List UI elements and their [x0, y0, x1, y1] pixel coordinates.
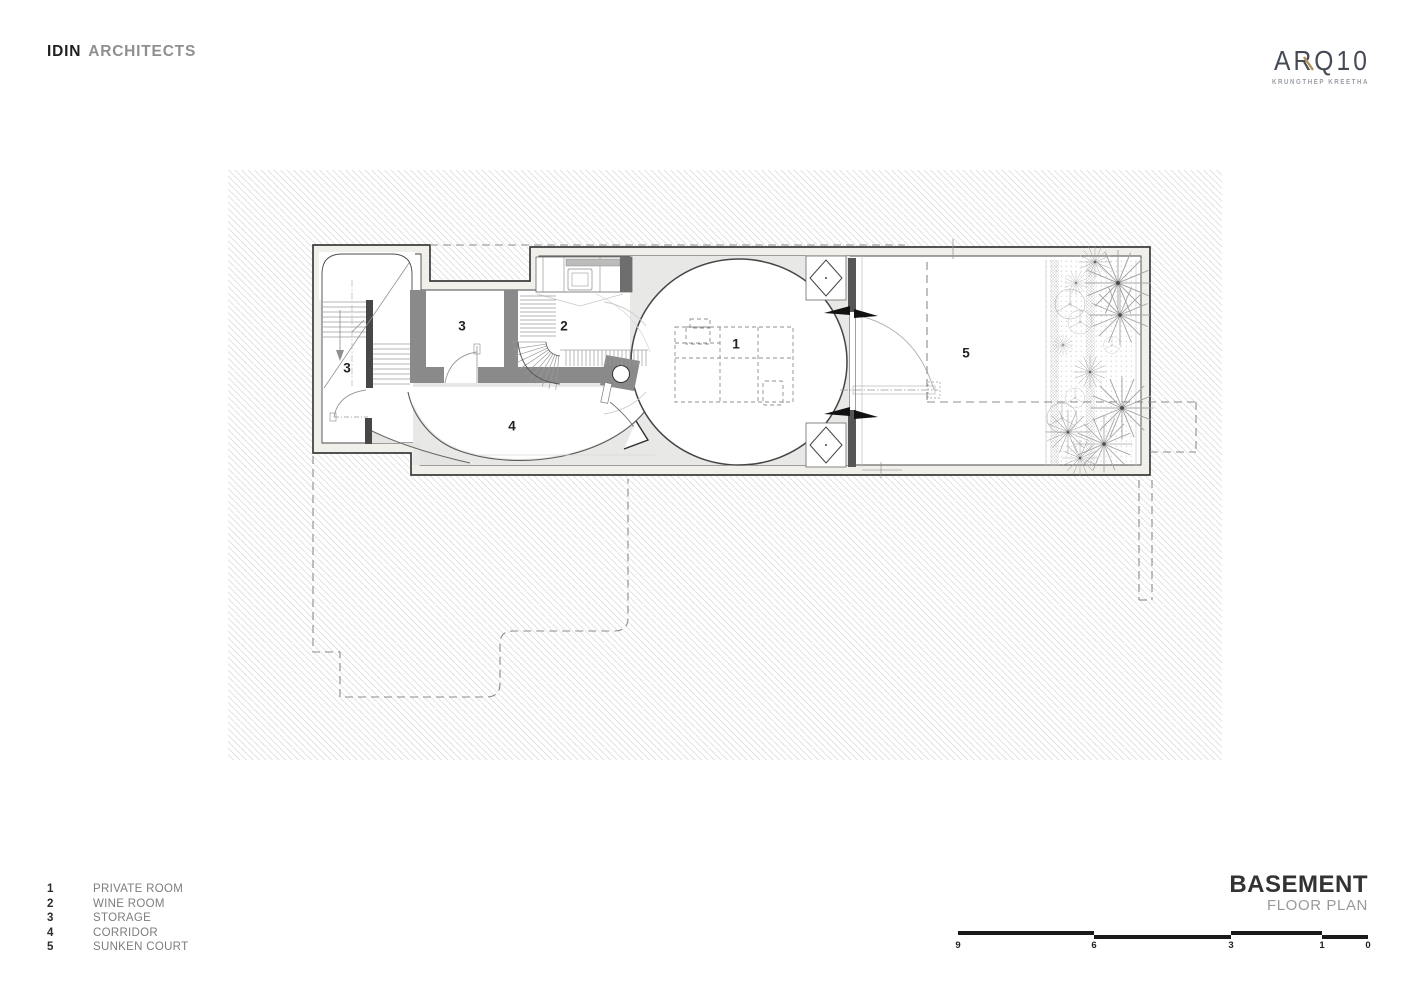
scale-bar-segment: [958, 931, 1094, 935]
scale-bar: 9 6 3 1 0: [950, 925, 1375, 957]
legend-label: STORAGE: [93, 911, 151, 926]
brand-primary: IDIN: [47, 43, 81, 60]
project-logo: ARQ10 KRUNGTHEP KREETHA: [1262, 40, 1380, 92]
hedge-band: [1050, 260, 1059, 466]
scale-bar-segment: [1322, 935, 1368, 939]
stair-wall: [366, 300, 373, 388]
partition-wall: [410, 367, 444, 383]
title-block: BASEMENT FLOOR PLAN: [1229, 872, 1368, 914]
legend-label: CORRIDOR: [93, 926, 158, 941]
legend-row: 4 CORRIDOR: [47, 926, 188, 941]
scale-bar-segment: [1094, 935, 1231, 939]
scale-number: 1: [1319, 940, 1324, 951]
legend-number: 5: [47, 940, 93, 955]
room-number-label: 3: [343, 361, 351, 376]
room-number-label: 3: [458, 319, 466, 334]
legend-number: 1: [47, 882, 93, 897]
room-number-label: 4: [508, 419, 516, 434]
legend-row: 5 SUNKEN COURT: [47, 940, 188, 955]
storage-room-rounded-walls: [322, 254, 412, 300]
room-number-label: 5: [962, 346, 970, 361]
scale-number: 0: [1365, 940, 1370, 951]
legend-label: SUNKEN COURT: [93, 940, 188, 955]
scale-number: 9: [955, 940, 960, 951]
closet-shelf: [566, 259, 620, 266]
brand-logo: IDINARCHITECTS: [47, 43, 196, 61]
legend-row: 3 STORAGE: [47, 911, 188, 926]
scale-number: 6: [1091, 940, 1096, 951]
legend-number: 4: [47, 926, 93, 941]
scale-bar-segment: [1231, 931, 1322, 935]
closet-appliance: [568, 269, 592, 290]
court-wall-upper: [848, 258, 856, 312]
basement-floor-plan-drawing: [228, 170, 1222, 760]
room-legend: 1 PRIVATE ROOM 2 WINE ROOM 3 STORAGE 4 C…: [47, 882, 188, 955]
legend-label: WINE ROOM: [93, 897, 165, 912]
shaft-column: [613, 366, 630, 383]
legend-number: 3: [47, 911, 93, 926]
sheet-title: BASEMENT: [1229, 872, 1368, 897]
partition-wall: [478, 367, 618, 383]
closet-wall-stub: [620, 257, 632, 292]
wall-stub: [365, 418, 372, 444]
legend-row: 2 WINE ROOM: [47, 897, 188, 912]
brand-secondary: ARCHITECTS: [88, 43, 196, 60]
legend-row: 1 PRIVATE ROOM: [47, 882, 188, 897]
project-logo-name: ARQ10: [1274, 45, 1370, 76]
room-number-label: 2: [560, 319, 568, 334]
project-logo-subtitle: KRUNGTHEP KREETHA: [1272, 77, 1369, 86]
legend-number: 2: [47, 897, 93, 912]
legend-label: PRIVATE ROOM: [93, 882, 183, 897]
sheet-subtitle: FLOOR PLAN: [1229, 897, 1368, 914]
room-number-label: 1: [732, 337, 740, 352]
scale-number: 3: [1228, 940, 1233, 951]
